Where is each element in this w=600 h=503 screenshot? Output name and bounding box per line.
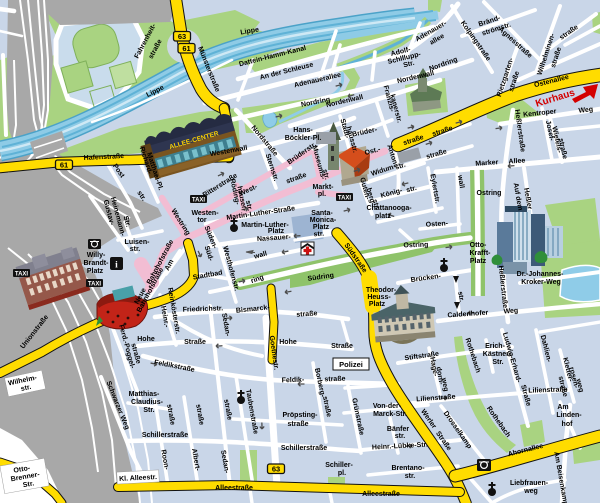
- svg-text:Platz: Platz: [87, 268, 104, 275]
- svg-text:straße: straße: [287, 421, 308, 428]
- svg-text:Schiller-: Schiller-: [325, 462, 353, 469]
- svg-text:Am: Am: [557, 404, 568, 411]
- svg-text:TAXI: TAXI: [15, 271, 29, 277]
- svg-text:Friedrichstr.: Friedrichstr.: [183, 305, 224, 313]
- svg-text:Platz: Platz: [369, 301, 386, 308]
- svg-text:platz: platz: [375, 213, 391, 220]
- svg-text:Weg: Weg: [503, 308, 518, 316]
- svg-text:str.: str.: [395, 433, 406, 440]
- svg-text:61: 61: [182, 44, 190, 53]
- svg-text:Erich-: Erich-: [485, 343, 506, 350]
- svg-text:Straße: Straße: [331, 343, 353, 350]
- svg-text:Westen-: Westen-: [191, 210, 219, 217]
- svg-text:Matthias-: Matthias-: [129, 391, 160, 398]
- svg-text:Brandt-: Brandt-: [84, 260, 110, 267]
- svg-text:Heuss-: Heuss-: [367, 294, 391, 301]
- svg-text:Feldik-: Feldik-: [282, 377, 305, 385]
- svg-text:Str.: Str.: [492, 359, 503, 366]
- svg-text:Kroker-Weg: Kroker-Weg: [521, 279, 561, 286]
- svg-text:Schillerstraße: Schillerstraße: [281, 445, 327, 452]
- svg-text:TAXI: TAXI: [88, 281, 102, 287]
- svg-text:Marck-Str.: Marck-Str.: [373, 411, 407, 418]
- svg-text:Chattanooga-: Chattanooga-: [366, 205, 412, 212]
- svg-text:Von-der-: Von-der-: [373, 403, 402, 410]
- svg-text:Hohe: Hohe: [137, 336, 155, 343]
- svg-text:Otto-: Otto-: [470, 242, 487, 249]
- svg-text:weg: weg: [523, 488, 538, 495]
- svg-text:i: i: [115, 260, 118, 270]
- svg-text:Theodor-: Theodor-: [366, 287, 397, 294]
- svg-text:Platz: Platz: [470, 258, 487, 265]
- svg-text:Liebfrauen-: Liebfrauen-: [510, 480, 549, 487]
- svg-text:str.: str.: [405, 473, 416, 480]
- svg-text:Santa-: Santa-: [311, 210, 333, 217]
- svg-text:Willy-: Willy-: [87, 252, 106, 259]
- svg-text:Claudius-: Claudius-: [131, 399, 164, 406]
- svg-text:Böckler-Pl.: Böckler-Pl.: [285, 135, 322, 142]
- svg-text:Straße: Straße: [184, 339, 206, 346]
- svg-text:Alleestraße: Alleestraße: [215, 485, 253, 492]
- svg-text:Alleestraße: Alleestraße: [362, 491, 400, 498]
- svg-text:Schillerstraße: Schillerstraße: [142, 432, 188, 439]
- svg-text:Allee: Allee: [508, 157, 525, 165]
- svg-text:TAXI: TAXI: [338, 195, 352, 201]
- svg-text:Ostring: Ostring: [403, 242, 428, 250]
- svg-text:straße: straße: [296, 310, 318, 318]
- svg-text:TAXI: TAXI: [192, 197, 206, 203]
- svg-text:Dr.-Johannes-: Dr.-Johannes-: [517, 271, 564, 278]
- svg-text:63: 63: [272, 465, 280, 474]
- svg-text:Linden-: Linden-: [556, 412, 582, 419]
- svg-text:Hohe: Hohe: [279, 339, 297, 346]
- svg-text:pl.: pl.: [318, 191, 326, 198]
- svg-text:str.: str.: [313, 231, 324, 239]
- svg-text:Ostring: Ostring: [477, 190, 502, 197]
- svg-text:Monica-: Monica-: [310, 217, 337, 224]
- svg-text:Polizei: Polizei: [339, 360, 363, 369]
- svg-text:Markt-: Markt-: [312, 184, 334, 191]
- svg-text:tor: tor: [197, 217, 207, 224]
- svg-text:Kästner-: Kästner-: [483, 351, 512, 358]
- svg-text:61: 61: [60, 161, 68, 170]
- svg-text:Pröpsting-: Pröpsting-: [283, 412, 319, 419]
- svg-text:hof: hof: [562, 421, 574, 428]
- svg-text:Luisen-: Luisen-: [125, 239, 151, 246]
- svg-text:Str.: Str.: [143, 407, 154, 414]
- svg-text:pl.: pl.: [338, 470, 346, 477]
- svg-text:Hans-: Hans-: [293, 127, 313, 134]
- svg-text:Lilienstraße: Lilienstraße: [528, 386, 568, 394]
- svg-text:Krafft-: Krafft-: [470, 250, 492, 257]
- svg-text:str.: str.: [130, 246, 141, 253]
- svg-text:Bänfer: Bänfer: [387, 426, 409, 433]
- svg-text:Brentano-: Brentano-: [391, 465, 425, 472]
- svg-text:straße: straße: [324, 376, 345, 384]
- svg-text:63: 63: [178, 32, 186, 41]
